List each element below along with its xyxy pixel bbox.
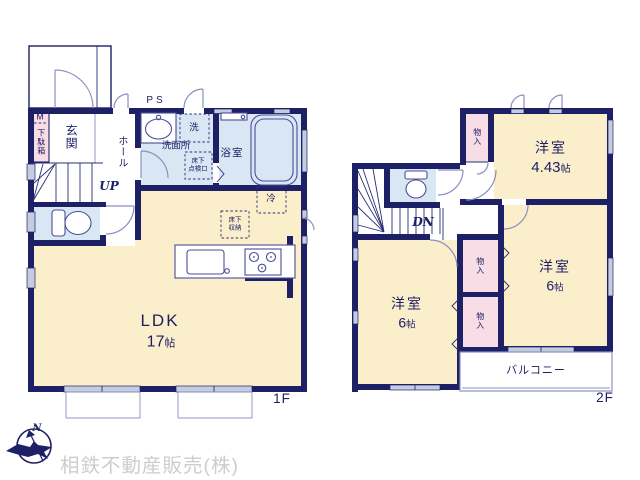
floor2-plan xyxy=(352,95,613,392)
room-label-bedroom3: 洋室 xyxy=(539,259,571,276)
pipe-space-label: PS xyxy=(146,95,165,107)
room-label-shoe-cabinet: 下駄箱 xyxy=(36,129,45,156)
room-label-bedroom2: 洋室 xyxy=(391,296,423,313)
bedroom1-size-label: 4.43帖 xyxy=(531,159,570,177)
stairs-down-label: DN xyxy=(412,215,433,229)
room-label-washroom: 洗面所 xyxy=(162,140,191,151)
floorplan-drawing xyxy=(0,0,640,480)
underfloor-hatch-label: 床下 点検口 xyxy=(188,157,208,172)
bird-logo-icon xyxy=(6,441,52,459)
room-label-hall: ホール xyxy=(115,136,127,169)
bedroom2-size-label: 6帖 xyxy=(398,315,415,332)
floor1-label: 1F xyxy=(273,391,291,407)
closet-label-b: 物入 xyxy=(475,257,484,275)
washbasin-icon xyxy=(141,113,176,143)
compass-logo xyxy=(6,429,52,463)
room-label-bedroom1: 洋室 xyxy=(535,140,567,157)
company-name: 相鉄不動産販売(株) xyxy=(60,449,239,478)
balcony-label: バルコニー xyxy=(506,365,566,378)
meter-label: M xyxy=(36,112,44,123)
stairs-up-label: UP xyxy=(99,179,119,193)
bedroom3-size-label: 6帖 xyxy=(546,278,563,295)
closet-label-c: 物入 xyxy=(475,312,484,330)
floorplan-page: M 下駄箱 玄関 ホール UP PS 洗面所 洗 浴室 床下 点検口 冷 床下 … xyxy=(0,0,640,480)
underfloor-storage-label: 床下 収納 xyxy=(229,216,242,231)
washer-label: 洗 xyxy=(189,122,199,133)
closet-label-a: 物入 xyxy=(472,128,481,146)
room-label-ldk: LDK xyxy=(140,311,179,331)
floor2-label: 2F xyxy=(596,390,614,406)
floor1-plan xyxy=(27,46,314,418)
porch xyxy=(29,46,128,108)
room-label-bathroom: 浴室 xyxy=(221,147,244,159)
toilet-icon xyxy=(52,210,91,236)
room-label-entrance: 玄関 xyxy=(64,124,78,150)
toilet-2f-icon xyxy=(405,171,427,198)
kitchen-counter xyxy=(175,245,295,278)
ldk-size-label: 17帖 xyxy=(147,334,176,353)
compass-north-label: N xyxy=(32,423,41,435)
refrigerator-label: 冷 xyxy=(266,193,276,204)
